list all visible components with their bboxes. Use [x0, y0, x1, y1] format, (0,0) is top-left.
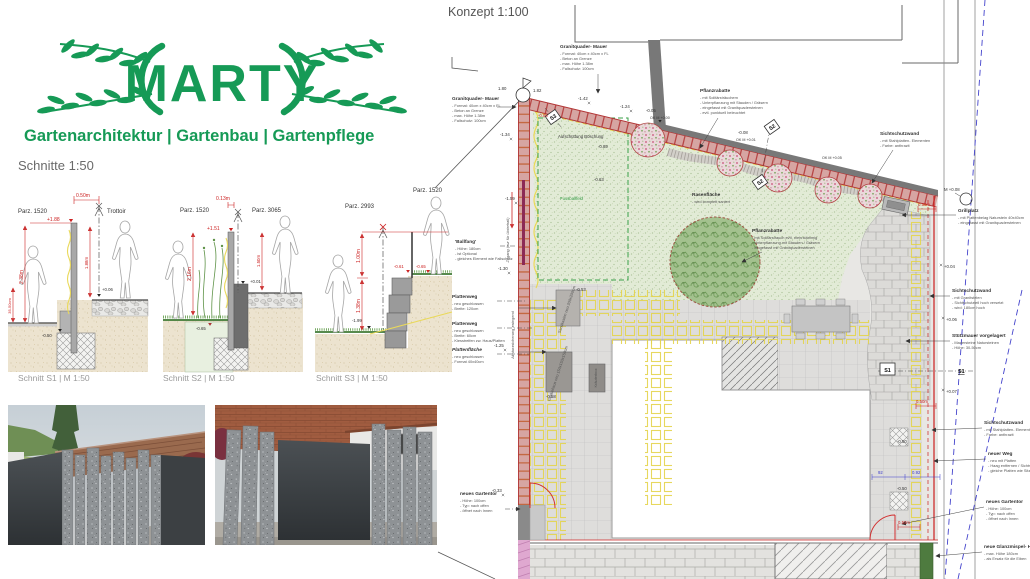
s2-parcel-left-label: Parz. 1520	[180, 208, 210, 214]
reference-photo-stone-fence-1	[8, 405, 214, 545]
svg-text:-0.08: -0.08	[738, 130, 748, 135]
s2-caption: Schnitt S2 | M 1:50	[163, 373, 235, 383]
svg-text:-0.85: -0.85	[538, 113, 548, 118]
svg-text:1.82: 1.82	[533, 88, 542, 93]
svg-text:Sichtschutzwand: Sichtschutzwand	[880, 131, 919, 137]
svg-text:'Ballfang': 'Ballfang'	[455, 239, 476, 245]
svg-text:- Farbe: anthrazit: - Farbe: anthrazit	[984, 432, 1015, 437]
svg-text:- eingefasst mit Granitquaders: - eingefasst mit Granitquadersteinen	[958, 220, 1021, 225]
svg-text:M +0.08: M +0.08	[944, 187, 960, 192]
schnitte-heading: Schnitte 1:50	[18, 158, 94, 173]
plant-bed	[858, 184, 882, 208]
svg-text:0.50m: 0.50m	[898, 520, 910, 525]
svg-text:0.50m: 0.50m	[918, 202, 930, 207]
svg-text:- Fallschutz: 100cm: - Fallschutz: 100cm	[560, 66, 594, 71]
s1-dim-top: 0.50m	[76, 193, 90, 199]
svg-text:OK M +0.05: OK M +0.05	[822, 156, 842, 160]
s2-elev-top: +1.51	[207, 226, 220, 232]
svg-text:-1.30: -1.30	[498, 266, 508, 271]
s1-elev-mid: +0.06	[102, 287, 113, 292]
svg-text:0.92: 0.92	[912, 470, 921, 475]
svg-text:- eingefasst mit Granitquaders: - eingefasst mit Granitquadersteinen	[752, 245, 815, 250]
label-absturzsicherung: Absturzsicherung zwingend	[510, 311, 515, 359]
svg-text:- Format 40x40cm: - Format 40x40cm	[452, 359, 484, 364]
svg-text:-0.50: -0.50	[897, 486, 907, 491]
svg-text:Grillplatz: Grillplatz	[958, 208, 979, 214]
section-marker-s2: S2	[764, 119, 780, 134]
s1-dim-h3: 1.88m	[84, 257, 89, 270]
svg-text:-1.24: -1.24	[620, 104, 630, 109]
svg-text:Granitquader- Mauer: Granitquader- Mauer	[560, 44, 607, 50]
svg-text:Rasenfläche: Rasenfläche	[692, 192, 721, 198]
plant-bed	[717, 150, 743, 176]
label-zugang: Zugang (nur für Unterhalt)	[505, 217, 510, 264]
svg-text:0.50m: 0.50m	[916, 399, 928, 404]
s2-dim-h2: 1.50m	[256, 255, 261, 268]
svg-text:neues Gartentor: neues Gartentor	[986, 499, 1023, 505]
svg-text:neue Glanzmispel- Hecke: neue Glanzmispel- Hecke	[984, 544, 1030, 550]
svg-text:S1: S1	[884, 368, 891, 374]
s1-dim-h1: 2.38m	[19, 270, 25, 284]
s3-parcel-right-label: Parz. 1520	[413, 188, 443, 194]
svg-text:-0.89: -0.89	[598, 144, 608, 149]
note-sichtschutz-mitte: Sichtschutzwand - mit Granitstelen - Sic…	[930, 288, 1004, 310]
section-marker-s1-outer: S1	[958, 369, 965, 375]
section-drawing-s2: Parz. 1520 Parz. 3065 0.13m +1.51 2.16m …	[163, 196, 303, 383]
svg-text:1.80: 1.80	[498, 86, 507, 91]
note-granit-mauer-top: Granitquader- Mauer - Format: 40cm x 40c…	[560, 44, 609, 93]
svg-text:Sichtschutzwand: Sichtschutzwand	[984, 420, 1023, 426]
svg-text:- Fallschutz: 100cm: - Fallschutz: 100cm	[452, 118, 486, 123]
svg-text:- evtl. punktuell beleuchtet: - evtl. punktuell beleuchtet	[700, 110, 746, 115]
brand-tagline: Gartenarchitektur | Gartenbau | Gartenpf…	[24, 127, 374, 145]
s2-elev-low: -0.65	[196, 326, 206, 331]
section-drawing-s1: Parz. 1520 Trottoir 0.50m +1.88 2.38m 35…	[7, 193, 148, 383]
s1-parcel-left-label: Parz. 1520	[18, 209, 48, 215]
svg-text:-0.50: -0.50	[897, 439, 907, 444]
label-fussballfeld: Fussballfeld	[560, 196, 584, 201]
svg-text:Plattenweg: Plattenweg	[452, 294, 477, 300]
svg-text:- gleiches Element wie Fallsch: - gleiches Element wie Fallschutz	[455, 256, 513, 261]
svg-text:+0.07: +0.07	[946, 389, 957, 394]
svg-text:neuer Weg: neuer Weg	[988, 451, 1013, 457]
brand-logo: MARTY Gartenarchitektur | Gartenbau | Ga…	[24, 37, 407, 145]
reference-photo-stone-fence-2	[210, 405, 437, 545]
s1-street-label: Trottoir	[107, 209, 126, 215]
s3-dim-h2: 1.38m	[356, 299, 362, 313]
s2-dim-top: 0.13m	[216, 196, 230, 202]
note-granit-mauer-left: Granitquader- Mauer - Format: 40cm x 40c…	[452, 96, 516, 123]
svg-text:+0.06: +0.06	[946, 317, 957, 322]
svg-text:Pflanzrabatte: Pflanzrabatte	[700, 88, 730, 94]
s3-elev-b: -0.65	[416, 264, 426, 269]
svg-text:- Höhe: 30-50cm: - Höhe: 30-50cm	[952, 345, 981, 350]
svg-text:- öffnet nach Innen: - öffnet nach Innen	[460, 508, 492, 513]
svg-text:-0.33: -0.33	[492, 488, 502, 493]
s2-dim-h1: 2.16m	[187, 267, 193, 281]
section-drawing-s3: Parz. 2993 Parz. 1520 1.00m 1.38m -0.61 …	[315, 188, 452, 383]
logo-wordmark: MARTY	[125, 55, 320, 113]
svg-text:OK M +0.00: OK M +0.00	[650, 116, 670, 120]
sheet-canvas: MARTY Gartenarchitektur | Gartenbau | Ga…	[0, 0, 1030, 579]
svg-text:Pflanzrabatte: Pflanzrabatte	[752, 228, 782, 234]
large-tree	[670, 217, 760, 307]
note-sichtschutz-oben: Sichtschutzwand - mit Stahlplatten- Elem…	[872, 131, 930, 183]
note-plattenweg-1: Plattenweg - neu geschlossen - Breite: 1…	[452, 294, 526, 311]
svg-text:-1.25: -1.25	[494, 343, 504, 348]
plan-title: Konzept 1:100	[448, 5, 529, 19]
svg-text:-1.34: -1.34	[500, 132, 510, 137]
s1-caption: Schnitt S1 | M 1:50	[18, 373, 90, 383]
s3-caption: Schnitt S3 | M 1:50	[316, 373, 388, 383]
svg-text:-1.59: -1.59	[505, 196, 515, 201]
svg-text:-0.58: -0.58	[546, 394, 556, 399]
svg-text:92: 92	[878, 470, 883, 475]
plant-bed	[815, 177, 841, 203]
gate-post	[518, 505, 530, 540]
label-kraeuterbox: Kräuterbox	[593, 368, 598, 387]
note-hecke: neue Glanzmispel- Hecke - max. Höhe 180c…	[936, 544, 1030, 561]
s1-elev-top: +1.88	[47, 217, 60, 223]
hedge	[920, 543, 933, 579]
svg-text:- Farbe: anthrazit: - Farbe: anthrazit	[880, 143, 911, 148]
svg-text:OK M +0.01: OK M +0.01	[736, 138, 756, 142]
label-aufschuettung: Aufschüttung Böschung	[558, 134, 604, 139]
svg-text:-0.63: -0.63	[594, 177, 604, 182]
s2-elev-mid: +0.01	[250, 279, 261, 284]
s3-parcel-left-label: Parz. 2993	[345, 204, 375, 210]
s1-elev-low: -0.50	[42, 333, 52, 338]
svg-text:- gleiche Platten wie Sitzplat: - gleiche Platten wie Sitzplatz	[988, 468, 1030, 473]
s2-parcel-right-label: Parz. 3065	[252, 208, 282, 214]
neighbor-buildings-outline	[575, 0, 958, 63]
svg-text:Stützmauer vorgelagert: Stützmauer vorgelagert	[952, 333, 1006, 339]
s3-elev-a: -0.61	[394, 264, 404, 269]
site-plan: Konzept 1:100	[435, 0, 1030, 579]
svg-text:- als Ersatz für die Eiben: - als Ersatz für die Eiben	[984, 556, 1026, 561]
svg-text:-0.53: -0.53	[576, 287, 586, 292]
plan-sheet: MARTY Gartenarchitektur | Gartenbau | Ga…	[0, 0, 1030, 579]
s1-dim-h2: 35-50cm	[7, 298, 12, 314]
s3-dim-h1: 1.00m	[356, 249, 362, 263]
svg-text:- wird komplett saniert: - wird komplett saniert	[692, 199, 731, 204]
plant-bed	[764, 164, 792, 192]
svg-text:- Breite: 120cm: - Breite: 120cm	[452, 306, 478, 311]
svg-text:-0.05: -0.05	[646, 108, 656, 113]
svg-text:Sichtschutzwand: Sichtschutzwand	[952, 288, 991, 294]
svg-text:- öffnet nach Innen: - öffnet nach Innen	[986, 516, 1018, 521]
plant-bed	[631, 123, 665, 157]
svg-text:Plattenfläche: Plattenfläche	[452, 347, 482, 353]
note-sichtschutz-unten: Sichtschutzwand - mit Stahlplatten- Elem…	[932, 420, 1030, 437]
s3-elev-low: -1.99	[352, 318, 362, 323]
svg-text:Plattenweg: Plattenweg	[452, 321, 477, 327]
note-gartentor-links: neues Gartentor - Höhe: 100cm - Typ: nac…	[460, 491, 520, 513]
section-marker-s1: S1	[880, 363, 895, 375]
svg-text:-1.42: -1.42	[578, 96, 588, 101]
svg-text:- wird: 180cm hoch: - wird: 180cm hoch	[952, 305, 985, 310]
svg-text:Granitquader- Mauer: Granitquader- Mauer	[452, 96, 499, 102]
svg-text:+0.04: +0.04	[944, 264, 955, 269]
